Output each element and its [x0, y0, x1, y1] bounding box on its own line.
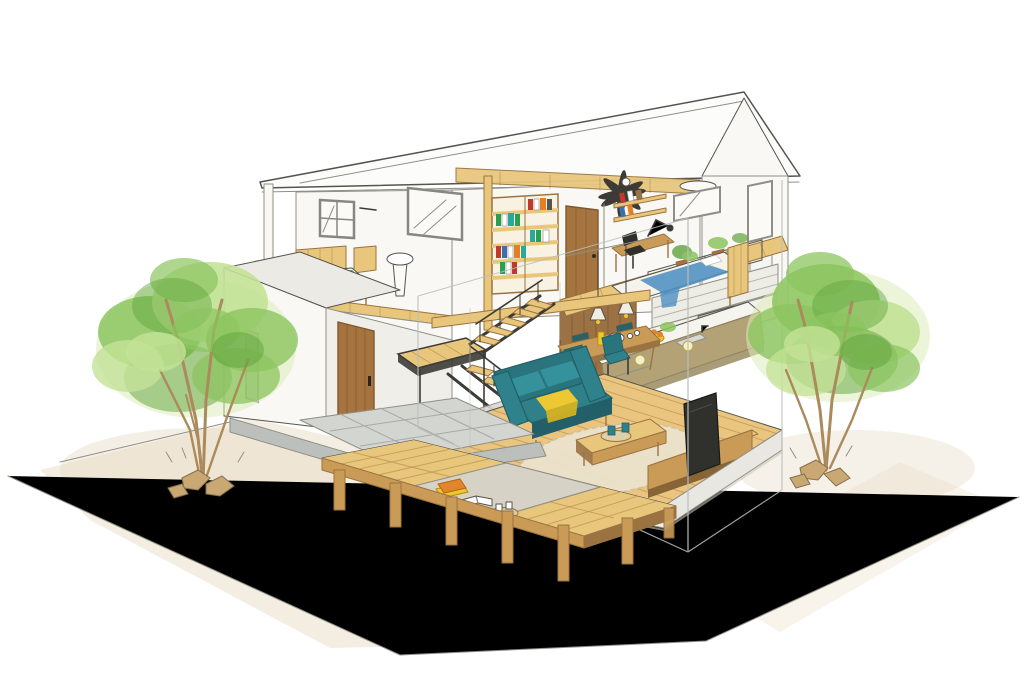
bedroom-left-window — [320, 200, 354, 238]
tv — [684, 393, 720, 476]
house-cutaway-illustration — [0, 0, 1024, 683]
cup-teal — [622, 423, 629, 432]
cup — [635, 331, 640, 336]
herb-plant — [660, 322, 676, 332]
stairwell-window — [408, 188, 462, 240]
decor-ring — [622, 178, 630, 186]
lemon-motif — [635, 355, 645, 365]
headboard — [728, 242, 748, 298]
cup-teal — [608, 426, 615, 435]
illustration-canvas — [0, 0, 1024, 683]
door-handle — [368, 376, 371, 386]
bookshelf — [492, 194, 558, 294]
cup — [628, 334, 633, 339]
wood-post — [484, 176, 492, 330]
